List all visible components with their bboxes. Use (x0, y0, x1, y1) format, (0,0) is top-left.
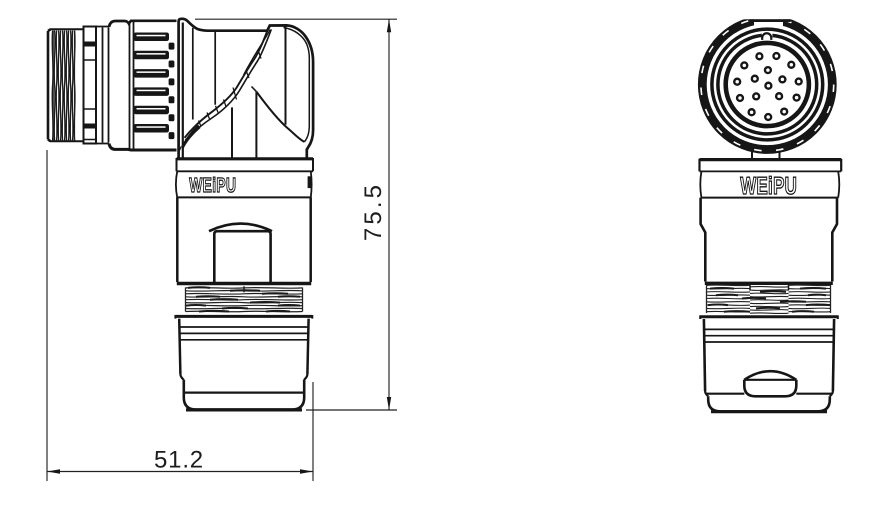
svg-text:WEiPU: WEiPU (189, 174, 236, 197)
svg-text:75.5: 75.5 (360, 182, 387, 241)
svg-text:WEiPU: WEiPU (740, 173, 797, 200)
svg-text:51.2: 51.2 (154, 446, 204, 473)
